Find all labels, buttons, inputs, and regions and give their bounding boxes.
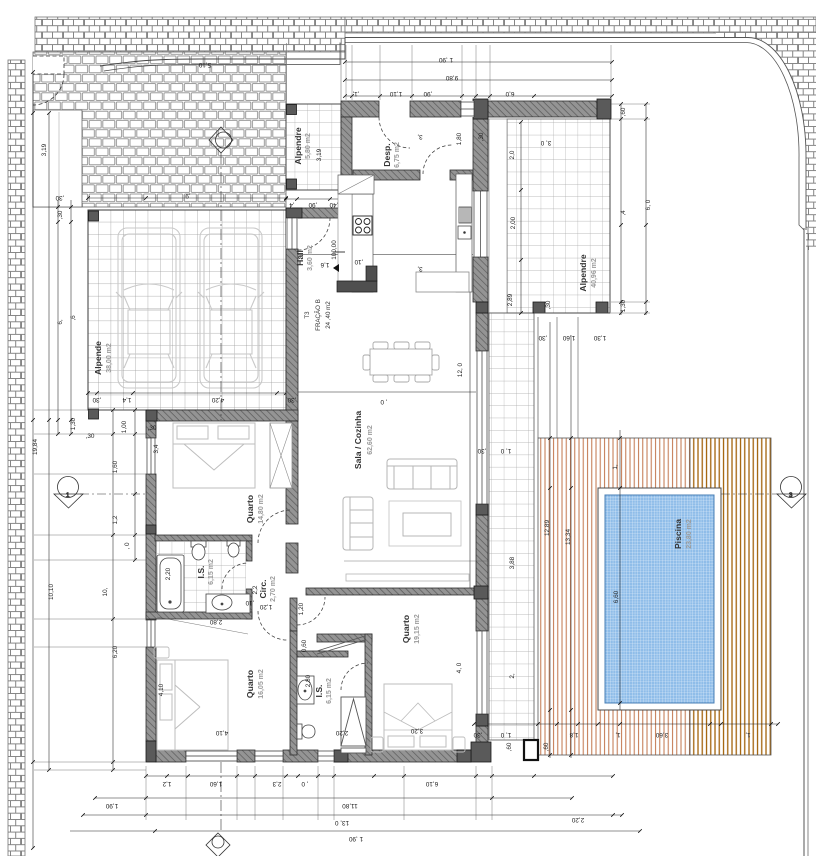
svg-text:38,00 m2: 38,00 m2	[106, 343, 113, 373]
svg-text:1,20: 1,20	[259, 603, 272, 610]
svg-text:, 0: , 0	[380, 398, 388, 405]
svg-text:1,: 1,	[745, 731, 751, 738]
svg-text:6, 0: 6, 0	[645, 199, 652, 210]
svg-text:1,00: 1,00	[121, 420, 128, 433]
svg-text:3,60 m2: 3,60 m2	[307, 245, 314, 271]
svg-text:2,80: 2,80	[209, 618, 222, 625]
svg-text:1, 0: 1, 0	[500, 731, 511, 738]
svg-text:3,4: 3,4	[153, 444, 160, 453]
svg-text:3,: 3,	[417, 133, 423, 140]
svg-text:, 0: , 0	[301, 780, 309, 787]
svg-text:10,: 10,	[102, 587, 109, 596]
svg-text:1,60: 1,60	[562, 334, 575, 341]
svg-text:,6: ,6	[70, 315, 77, 321]
svg-text:2,00: 2,00	[510, 216, 517, 229]
svg-text:,1,: ,1,	[352, 90, 359, 97]
svg-text:6,15 m2: 6,15 m2	[326, 678, 333, 704]
svg-text:2,: 2,	[509, 673, 516, 679]
svg-text:2,2: 2,2	[252, 585, 259, 594]
svg-text:12,89: 12,89	[544, 520, 551, 536]
svg-text:,60: ,60	[506, 742, 513, 751]
svg-text:3: 3	[789, 492, 793, 499]
svg-text:5,10: 5,10	[198, 61, 211, 68]
svg-text:1,: 1,	[615, 731, 621, 738]
svg-text:,60: ,60	[543, 742, 550, 751]
svg-text:13,34: 13,34	[565, 529, 572, 545]
svg-text:,4: ,4	[289, 201, 295, 208]
svg-text:19,15 m2: 19,15 m2	[414, 614, 421, 644]
svg-text:1 ,90: 1 ,90	[438, 56, 453, 63]
svg-text:6,: 6,	[57, 319, 64, 325]
svg-text:,30: ,30	[477, 447, 486, 454]
svg-text:2,20: 2,20	[165, 567, 172, 580]
svg-text:1,4: 1,4	[122, 396, 131, 403]
svg-text:14,80 m2: 14,80 m2	[258, 494, 265, 524]
svg-text:2,70 m2: 2,70 m2	[270, 576, 277, 602]
svg-text:3, 0: 3, 0	[540, 139, 551, 146]
svg-text:1,2: 1,2	[162, 780, 171, 787]
svg-text:Sala / Cozinha: Sala / Cozinha	[353, 411, 363, 469]
svg-text:62,60 m2: 62,60 m2	[367, 425, 374, 455]
svg-text:Piscina: Piscina	[673, 519, 683, 549]
svg-text:1,20: 1,20	[298, 602, 305, 615]
svg-text:19,84: 19,84	[32, 439, 39, 455]
svg-text:16,05 m2: 16,05 m2	[258, 669, 265, 699]
svg-text:FRAÇÃO B: FRAÇÃO B	[315, 299, 322, 331]
svg-text:,9: ,9	[185, 192, 191, 199]
svg-text:I.S.: I.S.	[314, 685, 324, 698]
svg-text:,10: ,10	[354, 258, 363, 265]
svg-text:1: 1	[66, 492, 70, 499]
svg-text:1,8: 1,8	[569, 731, 578, 738]
svg-text:1, 0: 1, 0	[500, 447, 511, 454]
svg-text:Alpendre: Alpendre	[578, 254, 588, 291]
svg-text:,30: ,30	[287, 396, 296, 403]
svg-text:1 ,90: 1 ,90	[348, 835, 363, 842]
svg-text:,60: ,60	[620, 107, 627, 116]
svg-text:1,30: 1,30	[70, 417, 77, 430]
svg-text:2,3: 2,3	[272, 780, 281, 787]
svg-text:1,90: 1,90	[105, 802, 118, 809]
svg-text:Alpende: Alpende	[93, 341, 103, 375]
svg-text:6,60: 6,60	[613, 590, 620, 603]
svg-text:,30: ,30	[545, 300, 552, 309]
svg-text:9,80: 9,80	[445, 74, 458, 81]
svg-text:Circ.: Circ.	[258, 579, 268, 598]
svg-text:3,: 3,	[417, 265, 423, 272]
svg-text:1,60: 1,60	[112, 460, 119, 473]
svg-text:2,89: 2,89	[507, 293, 514, 306]
svg-text:2,80: 2,80	[305, 674, 312, 687]
svg-text:1,80: 1,80	[456, 132, 463, 145]
svg-text:6,20: 6,20	[112, 645, 119, 658]
svg-text:40,96 m2: 40,96 m2	[591, 258, 598, 288]
svg-text:Quarto: Quarto	[401, 615, 411, 643]
svg-text:3,60: 3,60	[655, 731, 668, 738]
svg-text:,30: ,30	[538, 334, 547, 341]
svg-text:T3: T3	[304, 311, 311, 319]
svg-text:5,80 m2: 5,80 m2	[305, 133, 312, 159]
svg-text:3,20: 3,20	[410, 727, 423, 734]
svg-text:,30: ,30	[57, 210, 64, 219]
svg-text:Quarto: Quarto	[245, 670, 255, 698]
svg-text:1,60: 1,60	[209, 780, 222, 787]
svg-text:Quarto: Quarto	[245, 495, 255, 523]
svg-text:2,20: 2,20	[571, 816, 584, 823]
svg-text:0,60: 0,60	[301, 639, 308, 652]
svg-text:6,0: 6,0	[505, 90, 514, 97]
svg-text:12, 0: 12, 0	[457, 362, 464, 377]
svg-text:,40: ,40	[329, 201, 338, 208]
svg-text:,90: ,90	[423, 90, 432, 97]
svg-text:11,80: 11,80	[342, 802, 358, 809]
svg-text:,30: ,30	[478, 132, 485, 141]
svg-text:Hall: Hall	[295, 250, 305, 266]
svg-text:,30: ,30	[86, 433, 95, 440]
svg-text:1,: 1,	[612, 464, 619, 470]
svg-text:,30: ,30	[92, 396, 101, 403]
svg-text:2,0: 2,0	[509, 150, 516, 159]
svg-text:2,20: 2,20	[335, 729, 348, 736]
svg-text:1,30: 1,30	[620, 299, 627, 312]
svg-text:1,2: 1,2	[112, 515, 119, 524]
svg-text:,4: ,4	[620, 210, 627, 216]
svg-text:,90: ,90	[308, 201, 317, 208]
svg-text:,30: ,30	[473, 731, 482, 738]
svg-text:1,6: 1,6	[320, 261, 329, 268]
svg-text:Desp.: Desp.	[382, 143, 392, 166]
svg-text:24 ,40 m2: 24 ,40 m2	[325, 301, 332, 329]
svg-text:4,10: 4,10	[158, 683, 165, 696]
svg-text:I.S.: I.S.	[196, 566, 206, 579]
svg-text:3,19: 3,19	[41, 143, 48, 156]
svg-text:4,10: 4,10	[215, 729, 228, 736]
svg-text:10,10: 10,10	[48, 584, 55, 600]
svg-text:3,88: 3,88	[509, 556, 516, 569]
svg-text:3,19: 3,19	[316, 148, 323, 161]
svg-text:,10: ,10	[245, 599, 254, 606]
svg-text:,30: ,30	[148, 425, 157, 432]
svg-text:Alpendre: Alpendre	[293, 127, 303, 164]
svg-text:4,20: 4,20	[211, 396, 224, 403]
svg-text:6,75 m2: 6,75 m2	[394, 142, 401, 168]
svg-text:100,00: 100,00	[331, 240, 338, 260]
svg-text:23,80 m2: 23,80 m2	[686, 519, 693, 549]
svg-text:6,15 m2: 6,15 m2	[208, 559, 215, 585]
svg-text:,30: ,30	[55, 194, 64, 201]
svg-text:13, 0: 13, 0	[334, 819, 349, 826]
svg-text:6,10: 6,10	[425, 780, 438, 787]
svg-text:1,30: 1,30	[593, 334, 606, 341]
svg-text:, 0: , 0	[124, 542, 131, 550]
svg-text:4, 0: 4, 0	[456, 662, 463, 673]
svg-text:1,10: 1,10	[389, 90, 402, 97]
